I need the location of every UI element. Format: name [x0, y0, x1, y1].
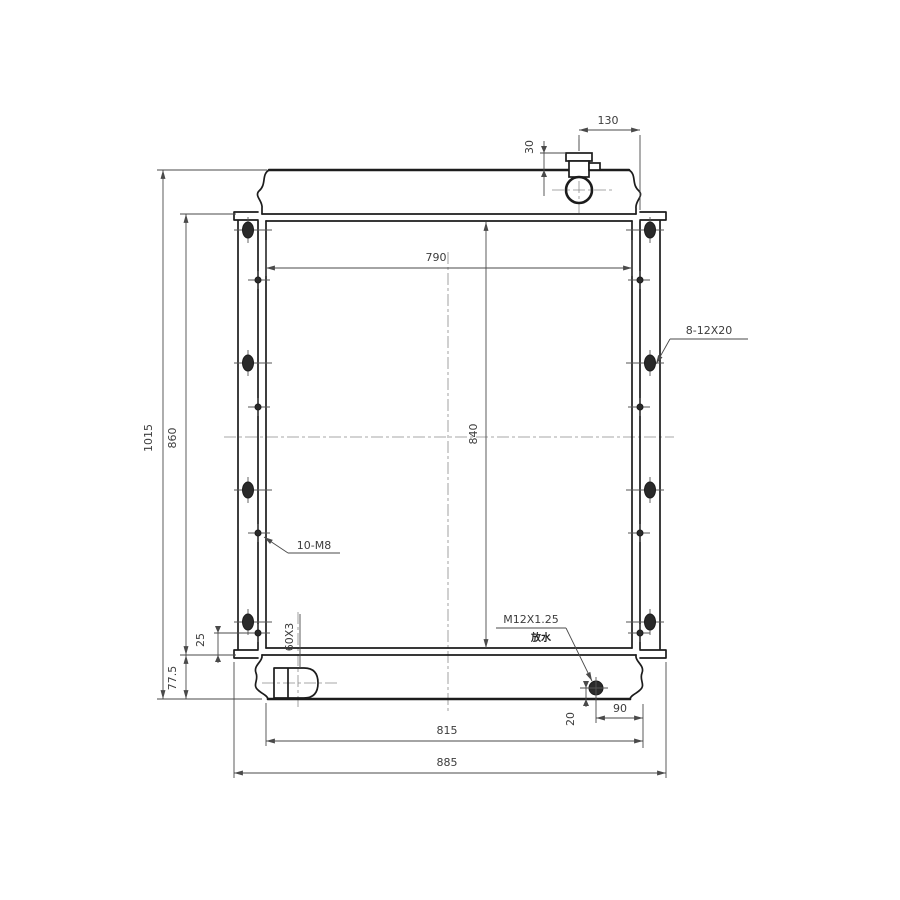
callout-outlet-tube: 60X3 [283, 623, 296, 652]
callout-drain-thread: M12X1.25 [503, 613, 559, 626]
dim-bottom-tank-width: 815 [437, 724, 458, 737]
callout-right-slots: 8-12X20 [686, 324, 733, 337]
dim-core-width: 790 [426, 251, 447, 264]
dim-bracket-height: 860 [166, 428, 179, 449]
callout-drain-note: 放水 [530, 631, 552, 644]
dim-core-height: 840 [467, 424, 480, 445]
dim-drain-height: 20 [564, 712, 577, 726]
dim-overall-height: 1015 [142, 424, 155, 452]
callout-left-screws: 10-M8 [297, 539, 331, 552]
filler-body [569, 161, 589, 177]
dim-neck-height: 30 [523, 140, 536, 154]
dim-screw-edge-offset: 25 [194, 633, 207, 647]
overflow-nub [589, 163, 600, 170]
radiator-drawing: 130 30 790 840 1015 860 77.5 25 20 [0, 0, 900, 900]
dim-top-neck-offset: 130 [598, 114, 619, 127]
filler-flange [566, 153, 592, 161]
dim-tank-depth: 77.5 [166, 666, 179, 691]
dim-overall-width: 885 [437, 756, 458, 769]
dim-drain-side-offset: 90 [613, 702, 627, 715]
